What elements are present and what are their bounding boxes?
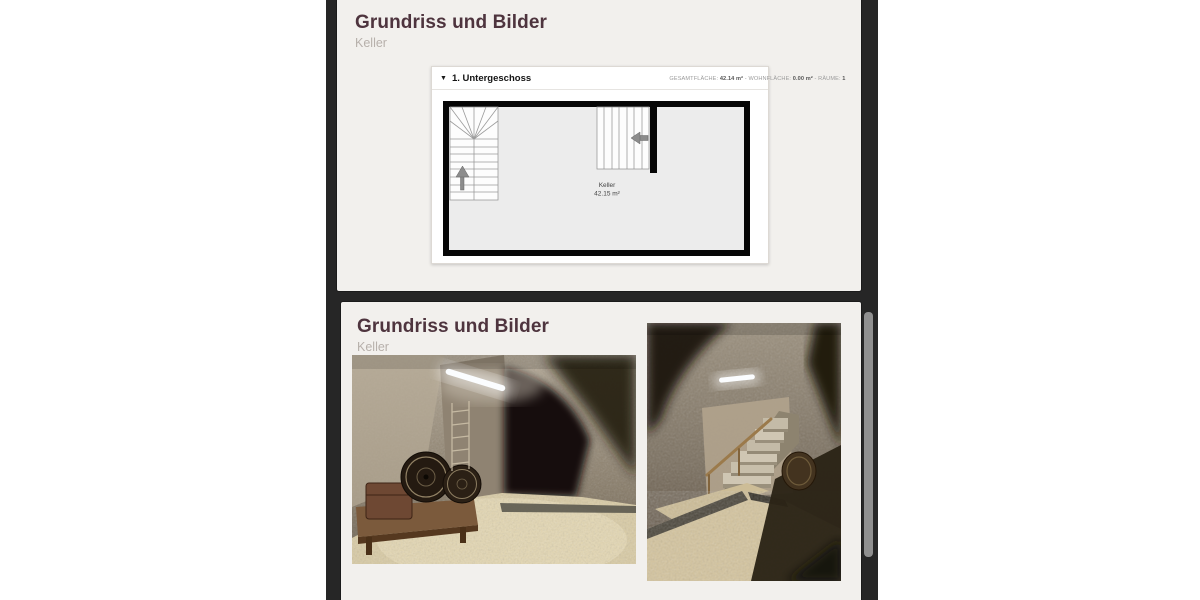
- wine-barrel-large: [401, 452, 451, 502]
- room-area-label: 42.15 m²: [594, 191, 620, 198]
- page-title: Grundriss und Bilder: [357, 316, 549, 338]
- scrollbar-thumb[interactable]: [864, 312, 873, 557]
- floorplan-header: ▼ 1. Untergeschoss GESAMTFLÄCHE: 42.14 m…: [432, 67, 768, 90]
- floorplan-stairs-left: [450, 107, 498, 200]
- floorplan-stats: GESAMTFLÄCHE: 42.14 m²-WOHNFLÄCHE: 0.00 …: [670, 75, 846, 81]
- stat-living-area-label: WOHNFLÄCHE:: [749, 75, 792, 81]
- floorplan-wall-segment: [650, 101, 657, 173]
- stat-living-area-value: 0.00 m²: [793, 75, 813, 81]
- stat-separator: -: [815, 75, 817, 81]
- document-page-photos: Grundriss und Bilder Keller: [341, 302, 861, 600]
- stat-separator: -: [745, 75, 747, 81]
- cellar-photo-barrels: [352, 355, 636, 564]
- room-name-label: Keller: [599, 182, 616, 189]
- page-subtitle: Keller: [357, 340, 389, 354]
- stat-rooms-value: 1: [842, 75, 845, 81]
- wine-barrel: [782, 452, 816, 490]
- page-subtitle: Keller: [355, 36, 387, 50]
- stat-total-area-value: 42.14 m²: [720, 75, 743, 81]
- page-title: Grundriss und Bilder: [355, 12, 547, 34]
- collapse-triangle-icon: ▼: [440, 75, 447, 82]
- floorplan-card: ▼ 1. Untergeschoss GESAMTFLÄCHE: 42.14 m…: [431, 66, 769, 264]
- floorplan-drawing: Keller 42.15 m²: [432, 91, 768, 264]
- wine-barrel-small: [443, 465, 481, 503]
- cellar-photo-staircase: [647, 323, 841, 581]
- stat-total-area-label: GESAMTFLÄCHE:: [670, 75, 719, 81]
- document-page-floorplan: Grundriss und Bilder Keller ▼ 1. Unterge…: [337, 0, 861, 291]
- floorplan-level-label: 1. Untergeschoss: [452, 73, 531, 84]
- screenshot-stage: Grundriss und Bilder Keller ▼ 1. Unterge…: [0, 0, 1200, 600]
- stat-rooms-label: RÄUME:: [818, 75, 840, 81]
